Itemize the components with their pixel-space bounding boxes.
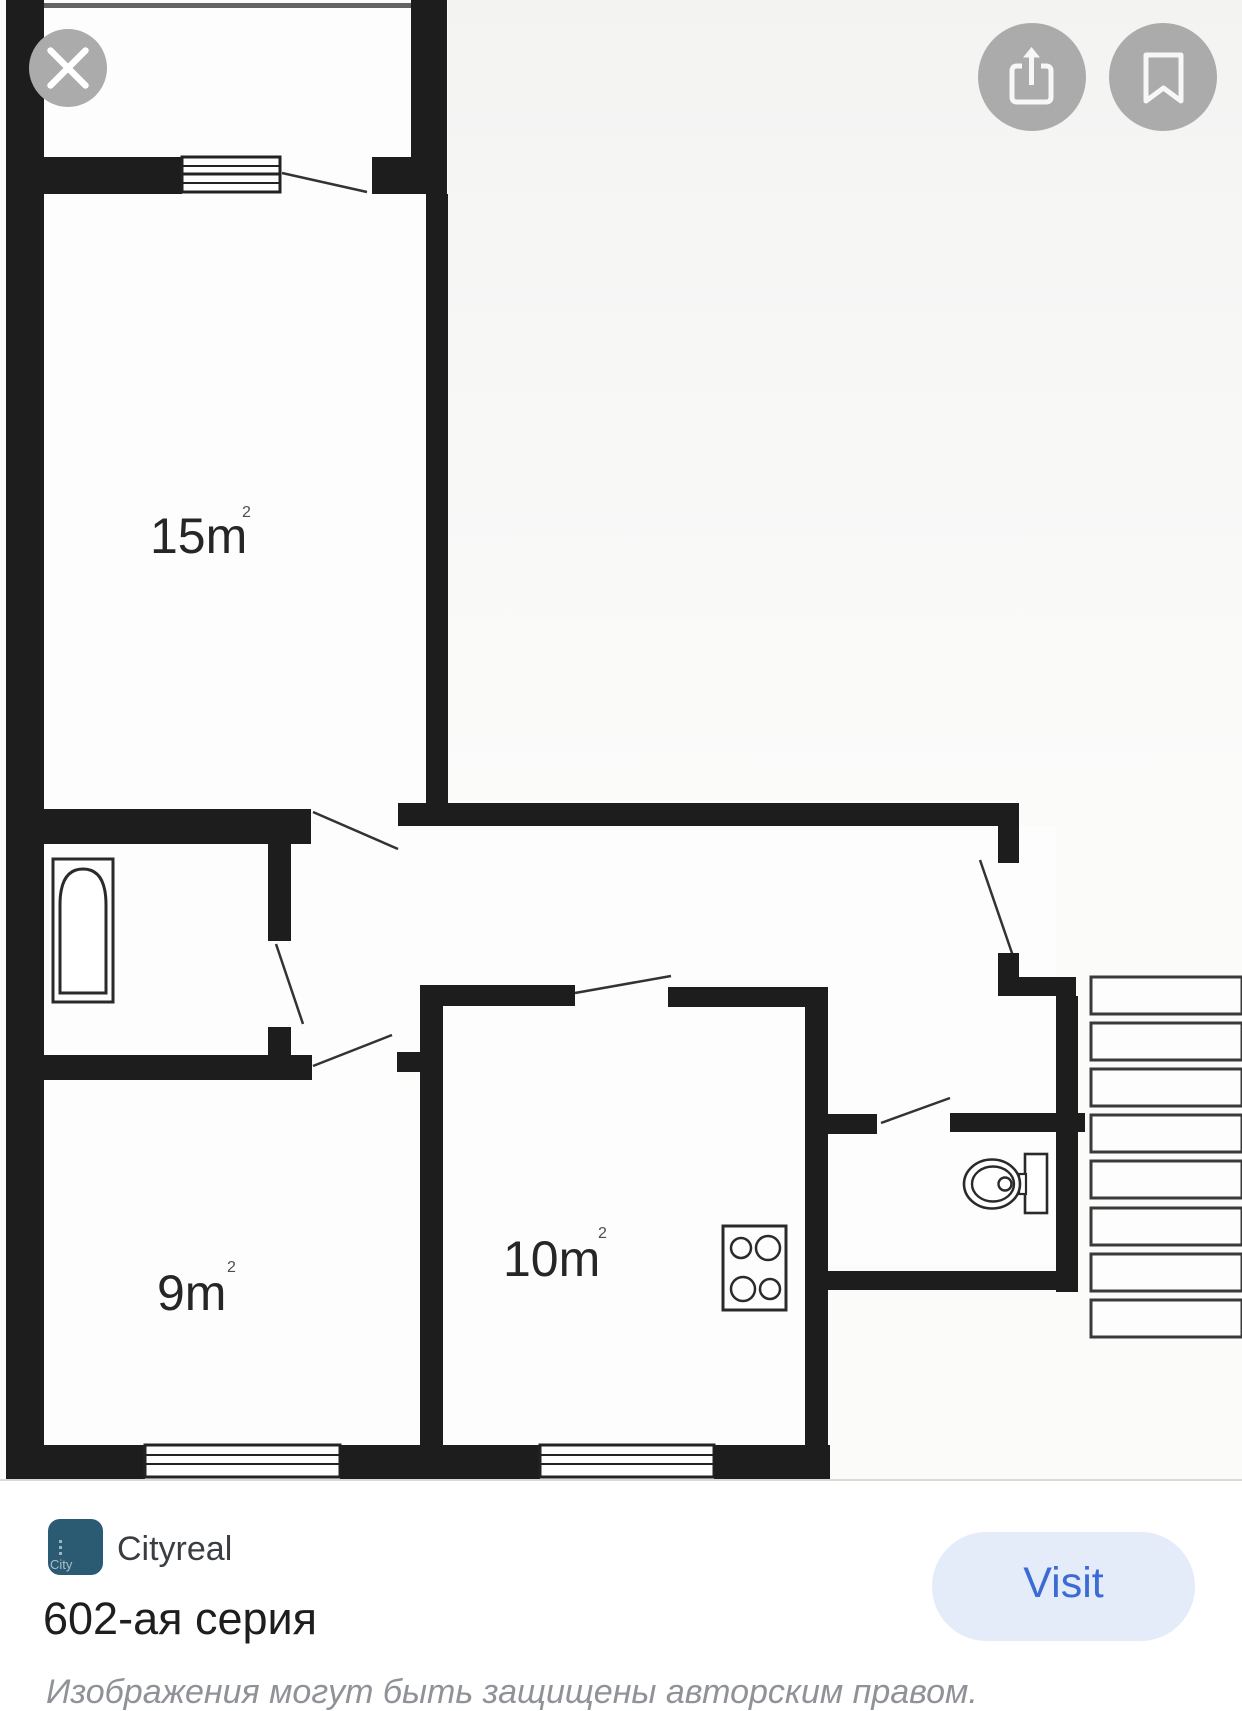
svg-text:10m: 10m [503,1231,600,1287]
svg-text:2: 2 [598,1225,607,1242]
svg-text:9m: 9m [157,1265,226,1321]
svg-text:2: 2 [227,1259,236,1276]
svg-text:15m: 15m [150,508,247,564]
svg-text:2: 2 [242,504,251,521]
